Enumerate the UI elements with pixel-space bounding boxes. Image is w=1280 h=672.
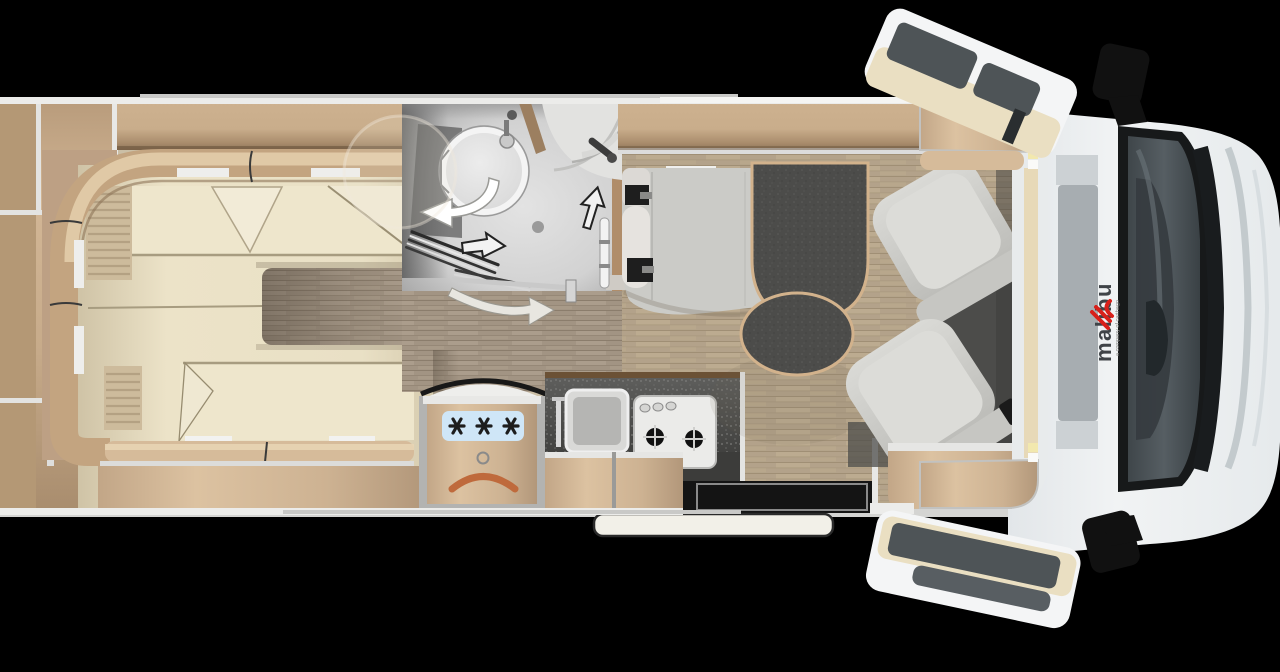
svg-text:a company of carthago: a company of carthago bbox=[1115, 300, 1121, 356]
